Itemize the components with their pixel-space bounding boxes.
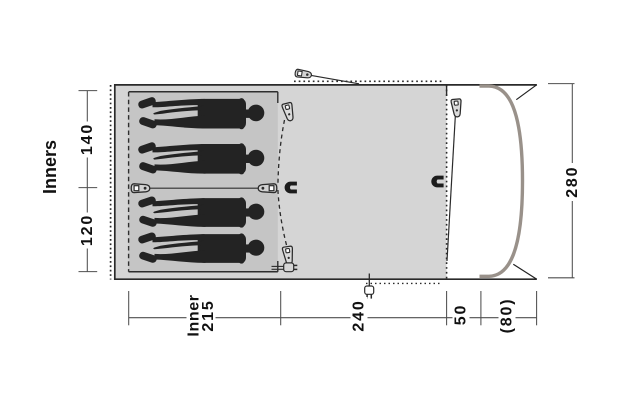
- svg-text:140: 140: [79, 123, 96, 155]
- svg-text:280: 280: [564, 166, 581, 198]
- svg-text:240: 240: [351, 299, 368, 331]
- svg-text:50: 50: [453, 304, 470, 325]
- svg-text:120: 120: [79, 214, 96, 246]
- svg-text:215: 215: [200, 299, 217, 331]
- svg-text:Inners: Inners: [40, 140, 60, 194]
- svg-text:(80): (80): [499, 298, 516, 334]
